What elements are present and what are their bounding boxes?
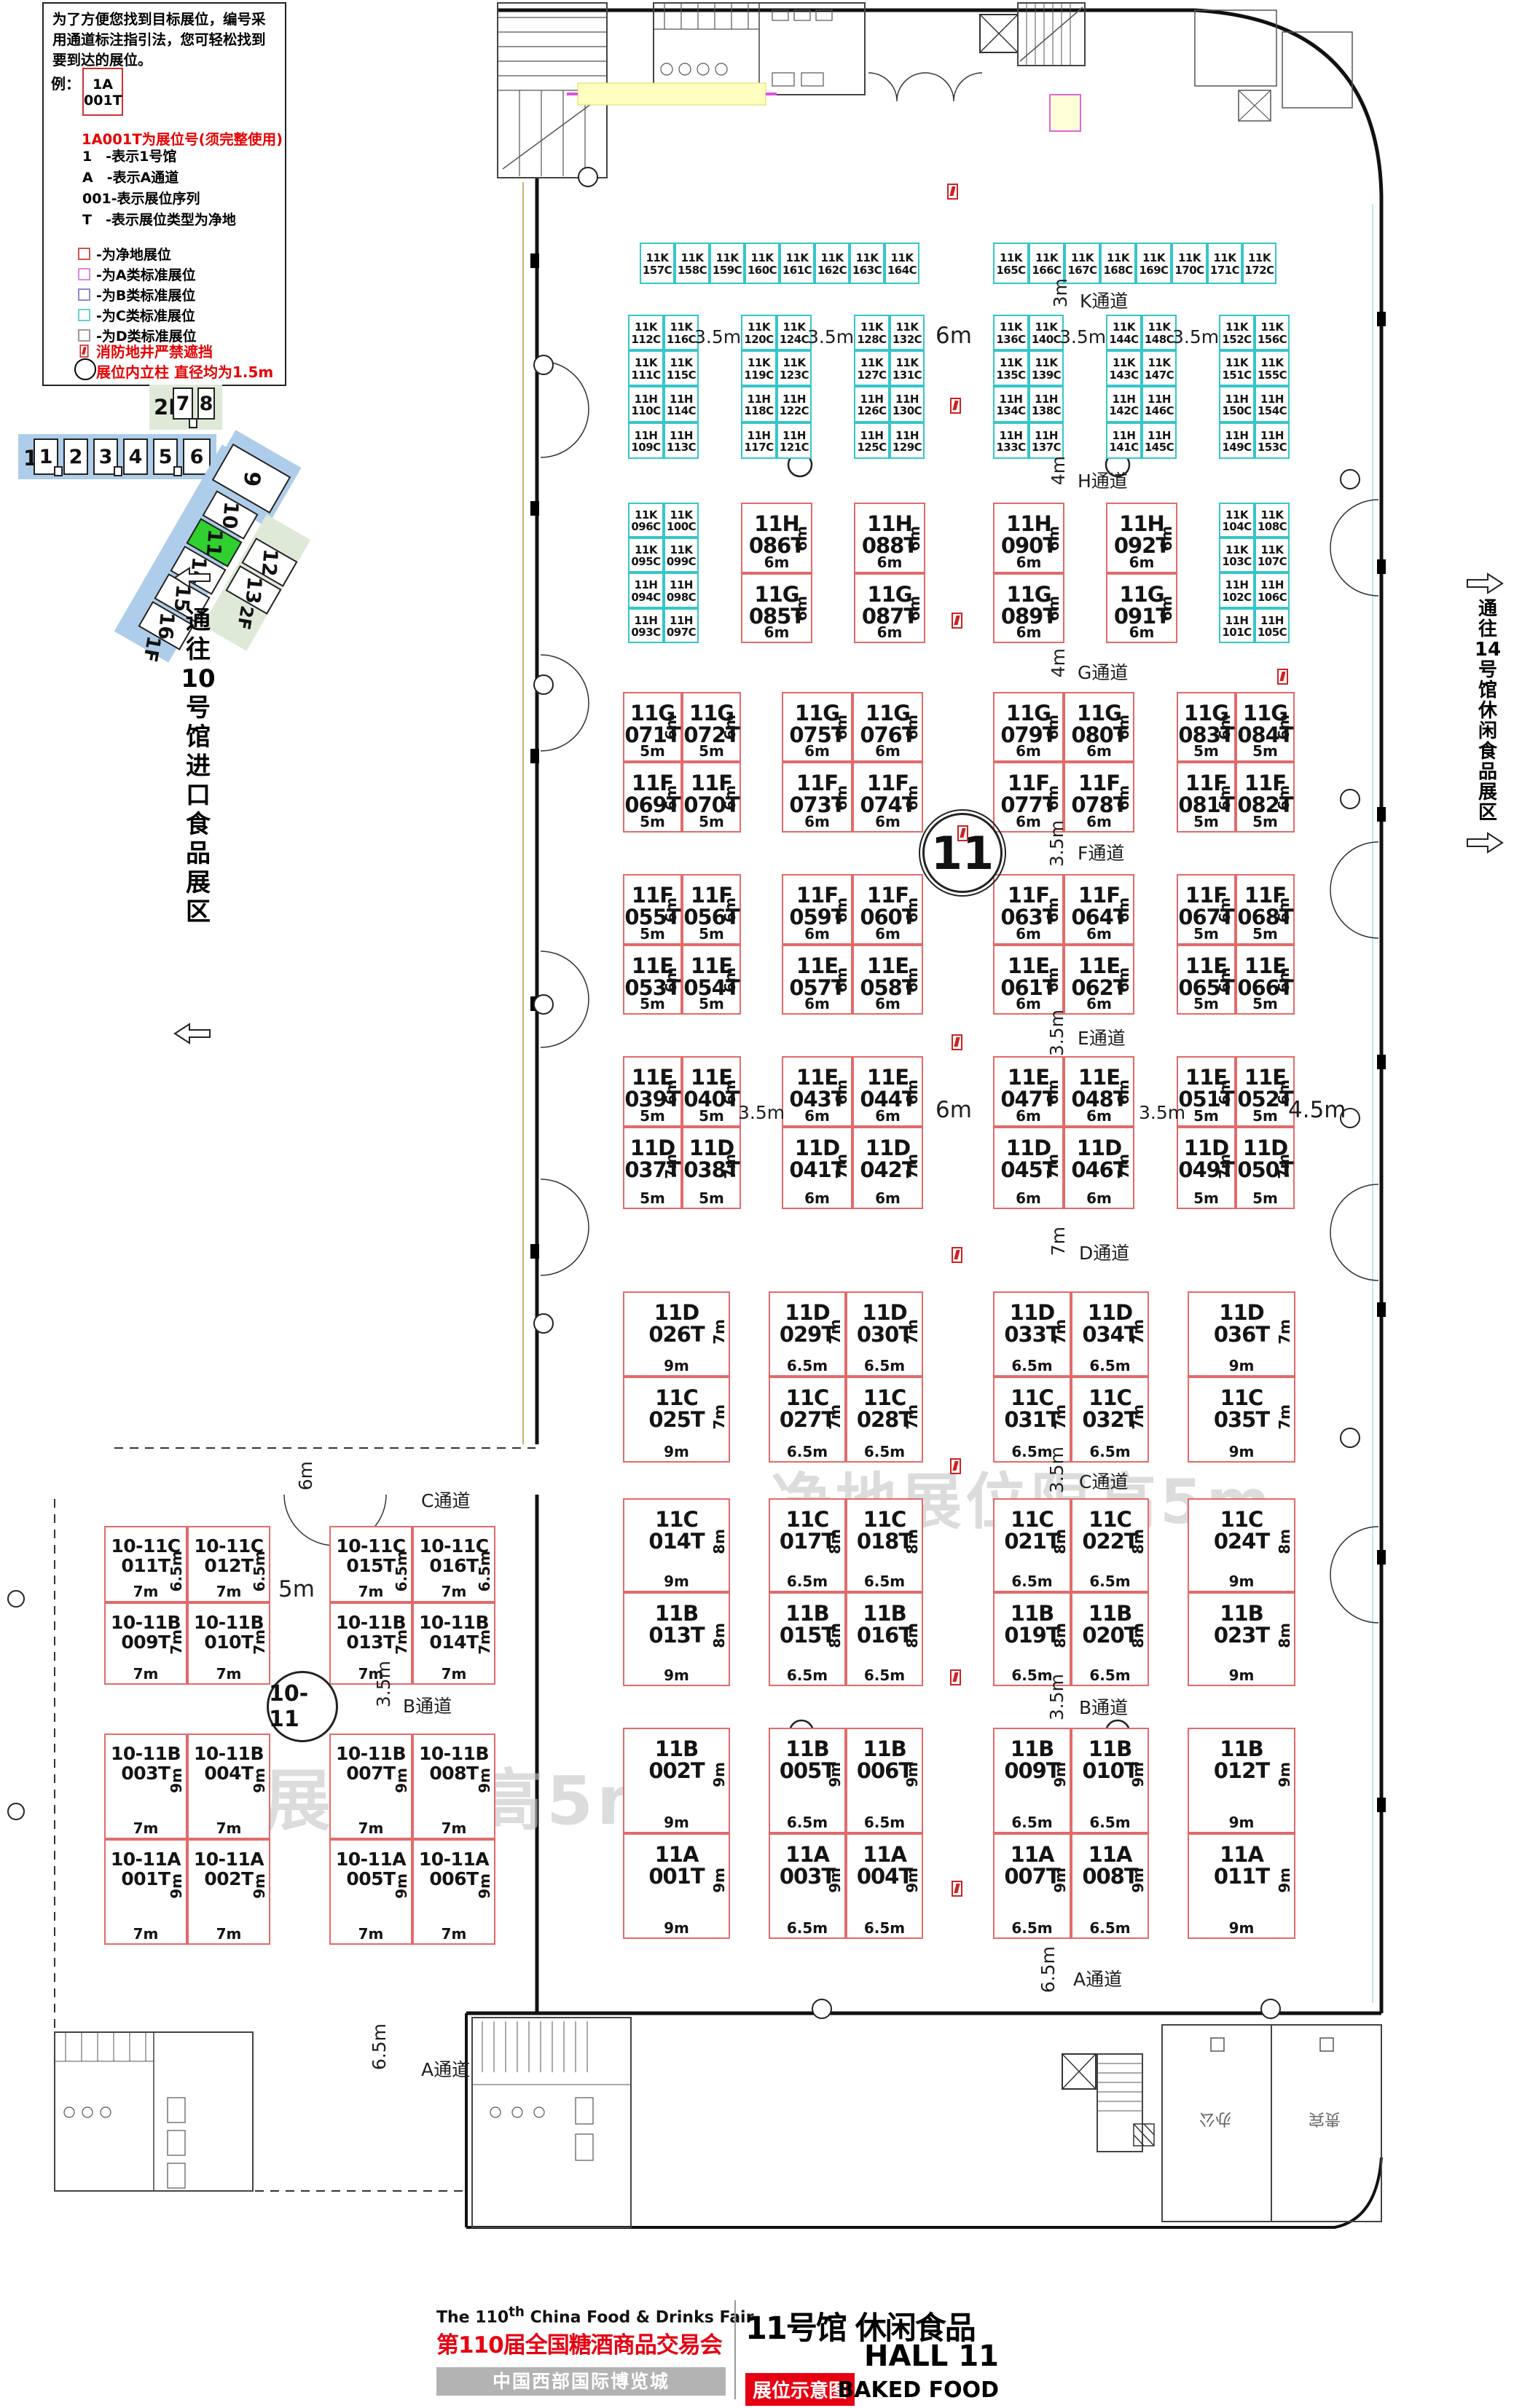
booth-width-dim: 6m [783,925,851,943]
booth-height-dim: 6m [833,897,850,923]
booth-11D-050T: 11D050T5m7m [1236,1127,1295,1209]
booth-11H-097C: 11H097C [664,608,699,643]
fire-well-icon [950,398,961,414]
booth-height-dim: 9m [710,1868,728,1893]
booth-11G-079T: 11G079T6m6m [993,692,1064,762]
booth-height-dim: 6m [903,967,921,993]
booth-11K-103C: 11K103C [1219,538,1255,573]
booth-width-dim: 7m [331,1665,411,1683]
booth-11E-044T: 11E044T6m6m [852,1056,923,1127]
booth-group-27: 11D029T6.5m7m11D030T6.5m7m11C027T6.5m7m1… [769,1291,923,1463]
booth-group-13: 11H092T6m6m11G091T6m6m [1106,503,1177,643]
booth-width-dim: 6m [854,813,922,830]
booth-width-dim: 7m [106,1925,186,1943]
booth-11E-048T: 11E048T6m6m [1064,1056,1134,1127]
booth-height-dim: 7m [251,1629,268,1655]
booth-id-line: 11K [781,252,813,264]
booth-id-line: 117C [742,441,775,454]
booth-width-dim: 6m [783,813,851,830]
booth-11E-058T: 11E058T6m6m [852,945,923,1015]
booth-height-dim: 9m [476,1768,493,1793]
booth-id-line: 151C [1220,369,1253,382]
booth-group-41: 10-11B007T7m9m10-11B008T7m9m10-11A005T7m… [329,1734,495,1945]
booth-id-line: 126C [855,405,888,417]
booth-11C-018T: 11C018T6.5m8m [846,1498,923,1592]
booth-id-line: 11K [629,357,662,369]
aisle-label-3.5m: 3.5m [1139,1102,1185,1123]
booth-group-24: 11E047T6m6m11E048T6m6m11D045T6m7m11D046T… [993,1056,1134,1209]
booth-id-line: 11K [1209,252,1241,264]
booth-id-line: 11K [629,321,662,334]
aisle-label-B通道: B通道 [403,1692,452,1718]
booth-group-28: 11D033T6.5m7m11D034T6.5m7m11C031T6.5m7m1… [993,1291,1149,1463]
booth-id-line: 11K [1143,357,1175,369]
fire-well-icon [1277,669,1288,685]
booth-11H-150C: 11H150C [1219,386,1255,422]
booth-11K-124C: 11K124C [777,315,812,350]
booth-height-dim: 6m [1275,785,1292,811]
booth-id-line: 170C [1173,264,1206,277]
booth-width-dim: 5m [624,995,680,1012]
booth-11K-123C: 11K123C [777,350,812,386]
booth-11K-155C: 11K155C [1255,350,1290,386]
booth-10-11C-015T: 10-11C015T7m6.5m [329,1526,412,1602]
booth-width-dim: 7m [106,1665,186,1683]
booth-height-dim: 6m [1045,596,1062,621]
legend-swatch-3: -为C类标准展位 [78,305,195,325]
booth-id-line: 167C [1066,264,1099,277]
booth-id-line: 11H [665,615,697,627]
booth-id-line: 11K [1030,321,1062,334]
booth-width-dim: 5m [1178,1189,1234,1207]
booth-height-dim: 6m [903,715,921,740]
booth-height-dim: 6m [1216,785,1233,811]
fire-well-icon [952,1034,962,1050]
booth-width-dim: 6.5m [770,1919,844,1937]
booth-width-dim: 5m [683,995,740,1012]
aisle-label-A通道: A通道 [421,2055,470,2082]
legend-example-booth: 1A 001T [82,68,123,116]
booth-id-line: 154C [1256,405,1288,417]
booth-11E-066T: 11E066T5m6m [1236,945,1295,1015]
booth-id-line: 095C [629,556,662,568]
booth-width-dim: 7m [106,1819,186,1837]
booth-height-dim: 6m [833,715,850,740]
booth-width-dim: 9m [1189,1573,1294,1590]
booth-id-line: 11K [995,357,1027,369]
booth-group-18: 11F055T5m6m11F056T5m6m11E053T5m6m11E054T… [623,874,741,1015]
booth-11F-074T: 11F074T6m6m [852,762,923,833]
booth-height-dim: 7m [1276,1404,1293,1430]
booth-11D-029T: 11D029T6.5m7m [769,1291,846,1377]
fair-title-cn: 第110届全国糖酒商品交易会 [436,2326,722,2359]
booth-11H-090T: 11H090T6m6m [993,503,1064,573]
booth-width-dim: 5m [1237,1107,1293,1125]
aisle-label-C通道: C通道 [421,1487,470,1513]
booth-11A-001T: 11A001T9m9m [623,1833,730,1939]
booth-id-line: 11K [1244,252,1275,264]
booth-11H-088T: 11H088T6m6m [854,503,925,573]
booth-11K-112C: 11K112C [628,315,664,350]
booth-11H-142C: 11H142C [1106,386,1142,422]
banner-char: 馆 [186,723,211,752]
booth-11H-118C: 11H118C [741,386,777,422]
booth-group-3: 11K120C11K124C11K119C11K123C11H118C11H12… [741,315,812,459]
booth-id-line: 116C [665,334,697,346]
banner-char: 进 [186,752,211,781]
booth-10-11B-010T: 10-11B010T7m7m [187,1602,270,1685]
booth-id-line: 11A [847,1844,922,1865]
booth-id-line: 130C [891,405,923,417]
booth-group-32: 11C021T6.5m8m11C022T6.5m8m11B019T6.5m8m1… [993,1498,1149,1686]
booth-11D-045T: 11D045T6m7m [993,1127,1064,1209]
booth-width-dim: 6m [1065,1189,1133,1207]
aisle-label-K通道: K通道 [1080,287,1128,313]
booth-id-line: 11K [1173,252,1206,264]
booth-11H-117C: 11H117C [741,422,777,459]
booth-height-dim: 6m [1115,1079,1132,1105]
booth-height-dim: 7m [826,1319,844,1345]
booth-11K-116C: 11K116C [664,315,699,350]
booth-11A-008T: 11A008T6.5m9m [1071,1833,1149,1939]
aisle-label-E通道: E通道 [1078,1024,1126,1050]
booth-height-dim: 6m [833,785,850,811]
booth-height-dim: 9m [710,1762,728,1787]
booth-width-dim: 6.5m [770,1443,844,1460]
legend-swatch-0: -为净地展位 [78,244,171,264]
minimap-hall-4: 4 [123,438,148,475]
booth-id-line: 11H [1143,393,1175,406]
booth-height-dim: 6m [1115,967,1132,993]
booth-11D-042T: 11D042T6m7m [852,1127,923,1209]
booth-height-dim: 7m [662,1154,680,1179]
booth-height-dim: 6m [721,785,739,811]
aisle-label-G通道: G通道 [1078,658,1128,685]
booth-height-dim: 6.5m [251,1551,268,1591]
booth-height-dim: 9m [826,1762,844,1787]
aisle-label-6m: 6m [295,1461,316,1490]
booth-11G-080T: 11G080T6m6m [1064,692,1134,762]
booth-width-dim: 7m [189,1819,269,1837]
booth-11D-030T: 11D030T6.5m7m [846,1291,923,1377]
booth-11F-078T: 11F078T6m6m [1064,762,1134,833]
aisle-label-4.5m: 4.5m [1288,1097,1346,1123]
booth-id-line: 11K [1220,544,1253,556]
booth-id-line: 11H [1256,615,1288,627]
booth-group-7: 11K152C11K156C11K151C11K155C11H150C11H15… [1219,315,1290,459]
booth-id-line: 11H [855,393,888,406]
booth-id-line: 137C [1030,441,1062,454]
booth-id-line: 11K [816,252,848,264]
booth-id-line: 11H [1107,430,1140,442]
booth-id-line: 166C [1030,264,1063,277]
booth-11K-127C: 11K127C [854,350,890,386]
footer: The 110th China Food & Drinks Fair 第110届… [436,2294,999,2404]
booth-11K-104C: 11K104C [1219,503,1255,538]
booth-id-line: 11B [995,1738,1070,1760]
booth-height-dim: 9m [393,1768,410,1793]
legend-rules: 1 -表示1号馆 A -表示A通道 001-表示展位序列 T -表示展位类型为净… [82,146,236,231]
booth-id-line: 155C [1256,369,1288,382]
booth-11C-024T: 11C024T9m8m [1188,1498,1295,1592]
booth-height-dim: 8m [710,1623,728,1648]
aisle-label-H通道: H通道 [1078,467,1128,493]
booth-id-line: 108C [1256,521,1288,533]
booth-id-line: 11K [851,252,883,264]
booth-id-line: 11C [1189,1508,1294,1530]
booth-width-dim: 6m [855,554,924,571]
booth-11C-021T: 11C021T6.5m8m [993,1498,1071,1592]
booth-height-dim: 6.5m [168,1551,185,1591]
aisle-label-3m: 3m [1050,278,1071,307]
booth-10-11A-002T: 10-11A002T7m9m [187,1839,270,1945]
booth-11K-163C: 11K163C [850,243,884,284]
booth-id-line: 098C [665,591,697,604]
booth-id-line: 11H [742,393,775,406]
booth-11H-138C: 11H138C [1029,386,1064,422]
booth-id-line: 11K [1256,544,1288,556]
booth-11H-113C: 11H113C [664,422,699,459]
legend-intro-line2: 用通道标注指引法，您可轻松找到 [52,31,266,48]
booth-group-8: 11K096C11K100C11K095C11K099C11H094C11H09… [628,503,699,643]
booth-width-dim: 6m [1107,623,1176,641]
aisle-label-3.5m: 3.5m [738,1102,785,1123]
booth-11K-158C: 11K158C [675,243,710,284]
right-arrow-icon [1466,832,1504,854]
banner-char: 往 [1478,619,1497,640]
booth-height-dim: 8m [1276,1623,1293,1648]
booth-width-dim: 9m [1189,1667,1294,1684]
booth-width-dim: 7m [331,1925,411,1943]
booth-id-line: 11K [1137,252,1170,264]
booth-width-dim: 6.5m [847,1573,922,1590]
booth-width-dim: 9m [1189,1357,1294,1374]
booth-11H-153C: 11H153C [1255,422,1290,459]
booth-id-line: 105C [1256,626,1288,639]
booth-id-line: 138C [1030,405,1062,417]
booth-group-39: 10-11C015T7m6.5m10-11C016T7m6.5m10-11B01… [329,1526,495,1685]
minimap-connector [54,466,63,476]
booth-width-dim: 5m [683,1107,740,1125]
booth-group-9: 11K104C11K108C11K103C11K107C11H102C11H10… [1219,503,1290,643]
booth-height-dim: 6m [906,596,923,621]
booth-height-dim: 6m [721,897,739,923]
booth-width-dim: 6.5m [1072,1573,1148,1590]
legend-example-label: 例： [51,72,80,93]
hall-badge-10-11: 10-11 [267,1671,338,1742]
banner-char: 通 [186,606,211,635]
legend-swatch-label: -为C类标准展位 [96,305,195,325]
booth-width-dim: 6m [854,742,922,760]
booth-id-line: 11K [1107,321,1140,334]
booth-height-dim: 7m [721,1154,739,1179]
booth-id-line: 100C [665,521,697,533]
booth-height-dim: 7m [1129,1404,1147,1430]
booth-10-11C-016T: 10-11C016T7m6.5m [412,1526,495,1602]
legend-panel: 为了方便您找到目标展位，编号采 用通道标注指引法，您可轻松找到 要到达的展位。 … [42,2,286,386]
booth-11H-133C: 11H133C [993,422,1029,459]
booth-11F-082T: 11F082T5m6m [1236,762,1295,833]
booth-id-line: 146C [1143,405,1175,417]
booth-11B-009T: 11B009T6.5m9m [993,1728,1071,1833]
booth-id-line: 11K [1107,357,1140,369]
booth-height-dim: 6m [793,526,810,551]
booth-10-11B-003T: 10-11B003T7m9m [104,1734,187,1839]
fire-well-icon [950,1669,961,1685]
booth-group-22: 11E039T5m6m11E040T5m6m11D037T5m7m11D038T… [623,1056,741,1209]
booth-id-line: 168C [1102,264,1134,277]
booth-id-line: 11K [665,321,697,334]
aisle-label-4m: 4m [1048,456,1069,485]
booth-11K-168C: 11K168C [1100,243,1136,284]
banner-char: 展 [186,868,211,897]
booth-width-dim: 5m [1178,925,1234,943]
booth-width-dim: 9m [624,1814,729,1831]
booth-id-line: 159C [711,264,743,277]
booth-width-dim: 7m [189,1665,269,1683]
booth-height-dim: 8m [903,1529,921,1554]
booth-height-dim: 8m [710,1529,728,1554]
booth-height-dim: 9m [251,1873,268,1899]
booth-id-line: 11K [746,252,778,264]
aisle-label-3.5m: 3.5m [1046,1010,1067,1056]
booth-width-dim: 6m [1065,925,1133,943]
booth-11E-051T: 11E051T5m6m [1177,1056,1236,1127]
booth-group-17: 11G083T5m6m11G084T5m6m11F081T5m6m11F082T… [1177,692,1295,833]
booth-id-line: 11K [676,252,708,264]
booth-11E-062T: 11E062T6m6m [1064,945,1134,1015]
booth-id-line: 172C [1244,264,1275,277]
booth-11H-098C: 11H098C [664,573,699,608]
booth-id-line: 11B [995,1602,1070,1624]
booth-height-dim: 9m [1051,1762,1069,1787]
booth-id-line: 099C [665,556,697,568]
booth-11K-120C: 11K120C [741,315,777,350]
booth-height-dim: 9m [251,1768,268,1793]
booth-width-dim: 6m [1065,1107,1133,1125]
booth-height-dim: 6m [1216,897,1233,923]
booth-11H-110C: 11H110C [628,386,664,422]
booth-id-line: 11B [624,1738,729,1760]
booth-11K-169C: 11K169C [1136,243,1172,284]
booth-id-line: 11K [1143,321,1175,334]
booth-11H-154C: 11H154C [1255,386,1290,422]
booth-id-line: 11K [886,252,918,264]
booth-width-dim: 6m [1065,813,1133,830]
booth-11E-040T: 11E040T5m6m [682,1056,741,1127]
booth-id-line: 11H [742,430,775,442]
booth-width-dim: 6m [995,554,1063,571]
booth-width-dim: 6m [783,1107,851,1125]
booth-11G-071T: 11G071T5m6m [623,692,682,762]
booth-11G-089T: 11G089T6m6m [993,573,1064,643]
booth-id-line: 122C [778,405,810,417]
booth-height-dim: 6m [662,967,680,993]
left-direction-banner: 通往10号馆进口食品展区 [175,606,221,926]
booth-width-dim: 6.5m [770,1573,844,1590]
booth-id-line: 11K [742,357,775,369]
booth-id-line: 11H [891,393,923,406]
booth-width-dim: 6m [854,1189,922,1207]
banner-char: 10 [181,664,215,693]
legend-intro: 为了方便您找到目标展位，编号采 用通道标注指引法，您可轻松找到 要到达的展位。 [52,9,280,71]
booth-11F-070T: 11F070T5m6m [682,762,741,833]
legend-rule-title: 1A001T为展位号(须完整使用) [82,127,283,149]
booth-10-11B-004T: 10-11B004T7m9m [187,1734,270,1839]
booth-10-11A-005T: 10-11A005T7m9m [329,1839,412,1945]
booth-height-dim: 9m [826,1868,844,1893]
booth-height-dim: 7m [826,1404,844,1430]
booth-height-dim: 6m [1275,967,1292,993]
booth-11F-069T: 11F069T5m6m [623,762,682,833]
booth-11B-012T: 11B012T9m9m [1188,1728,1295,1833]
booth-width-dim: 9m [624,1573,729,1590]
booth-width-dim: 5m [683,1189,740,1207]
booth-11K-099C: 11K099C [664,538,699,573]
right-direction-banner: 通往14号馆休闲食品展区 [1464,599,1511,823]
banner-char: 食 [1478,741,1497,762]
booth-11C-025T: 11C025T9m7m [623,1377,730,1463]
booth-id-line: 11K [995,321,1027,334]
booth-11K-152C: 11K152C [1219,315,1255,350]
booth-height-dim: 6.5m [393,1551,410,1591]
booth-id-line: 152C [1220,334,1253,346]
booth-11E-065T: 11E065T5m6m [1177,945,1236,1015]
booth-11K-159C: 11K159C [710,243,745,284]
booth-group-11: 11H088T6m6m11G087T6m6m [854,503,925,643]
booth-11B-013T: 11B013T9m8m [623,1592,730,1686]
booth-height-dim: 9m [168,1768,185,1793]
booth-height-dim: 8m [1276,1529,1293,1554]
booth-id-line: 11H [629,430,662,442]
booth-id-line: 11K [742,321,775,334]
booth-height-dim: 9m [168,1873,185,1899]
left-arrow-icon [173,567,211,589]
booth-width-dim: 5m [624,1189,680,1207]
legend-swatch-1: -为A类标准展位 [78,264,196,284]
left-arrow-icon [173,1023,211,1044]
booth-id-line: 11K [1256,509,1288,522]
booth-id-line: 11H [891,430,923,442]
booth-width-dim: 6m [854,925,922,943]
booth-id-line: 11K [665,544,697,556]
booth-11C-035T: 11C035T9m7m [1188,1377,1295,1463]
minimap-connector [114,466,122,476]
booth-11H-094C: 11H094C [628,573,664,608]
booth-height-dim: 6m [1044,1079,1062,1105]
legend-swatch-label: -为净地展位 [96,244,171,264]
booth-width-dim: 6.5m [1072,1919,1148,1937]
booth-11H-101C: 11H101C [1219,608,1255,643]
booth-id-line: 11K [778,357,810,369]
booth-width-dim: 6m [854,995,922,1012]
booth-group-15: 11G075T6m6m11G076T6m6m11F073T6m6m11F074T… [782,692,923,833]
hall-title-en: HALL 11 [864,2340,999,2373]
booth-id-line: 133C [995,441,1027,454]
minimap-hall-6: 6 [183,438,211,475]
booth-id-line: 11C [770,1508,844,1530]
booth-width-dim: 6m [742,623,811,641]
booth-id-line: 11H [629,579,662,591]
booth-width-dim: 6m [1107,554,1176,571]
booth-11F-055T: 11F055T5m6m [623,874,682,945]
legend-swatch-color [78,248,90,260]
booth-height-dim: 6m [1045,526,1062,551]
booth-11A-011T: 11A011T9m9m [1188,1833,1295,1939]
aisle-label-B通道: B通道 [1079,1693,1128,1720]
booth-id-line: 135C [995,369,1027,382]
booth-height-dim: 9m [1051,1868,1069,1893]
